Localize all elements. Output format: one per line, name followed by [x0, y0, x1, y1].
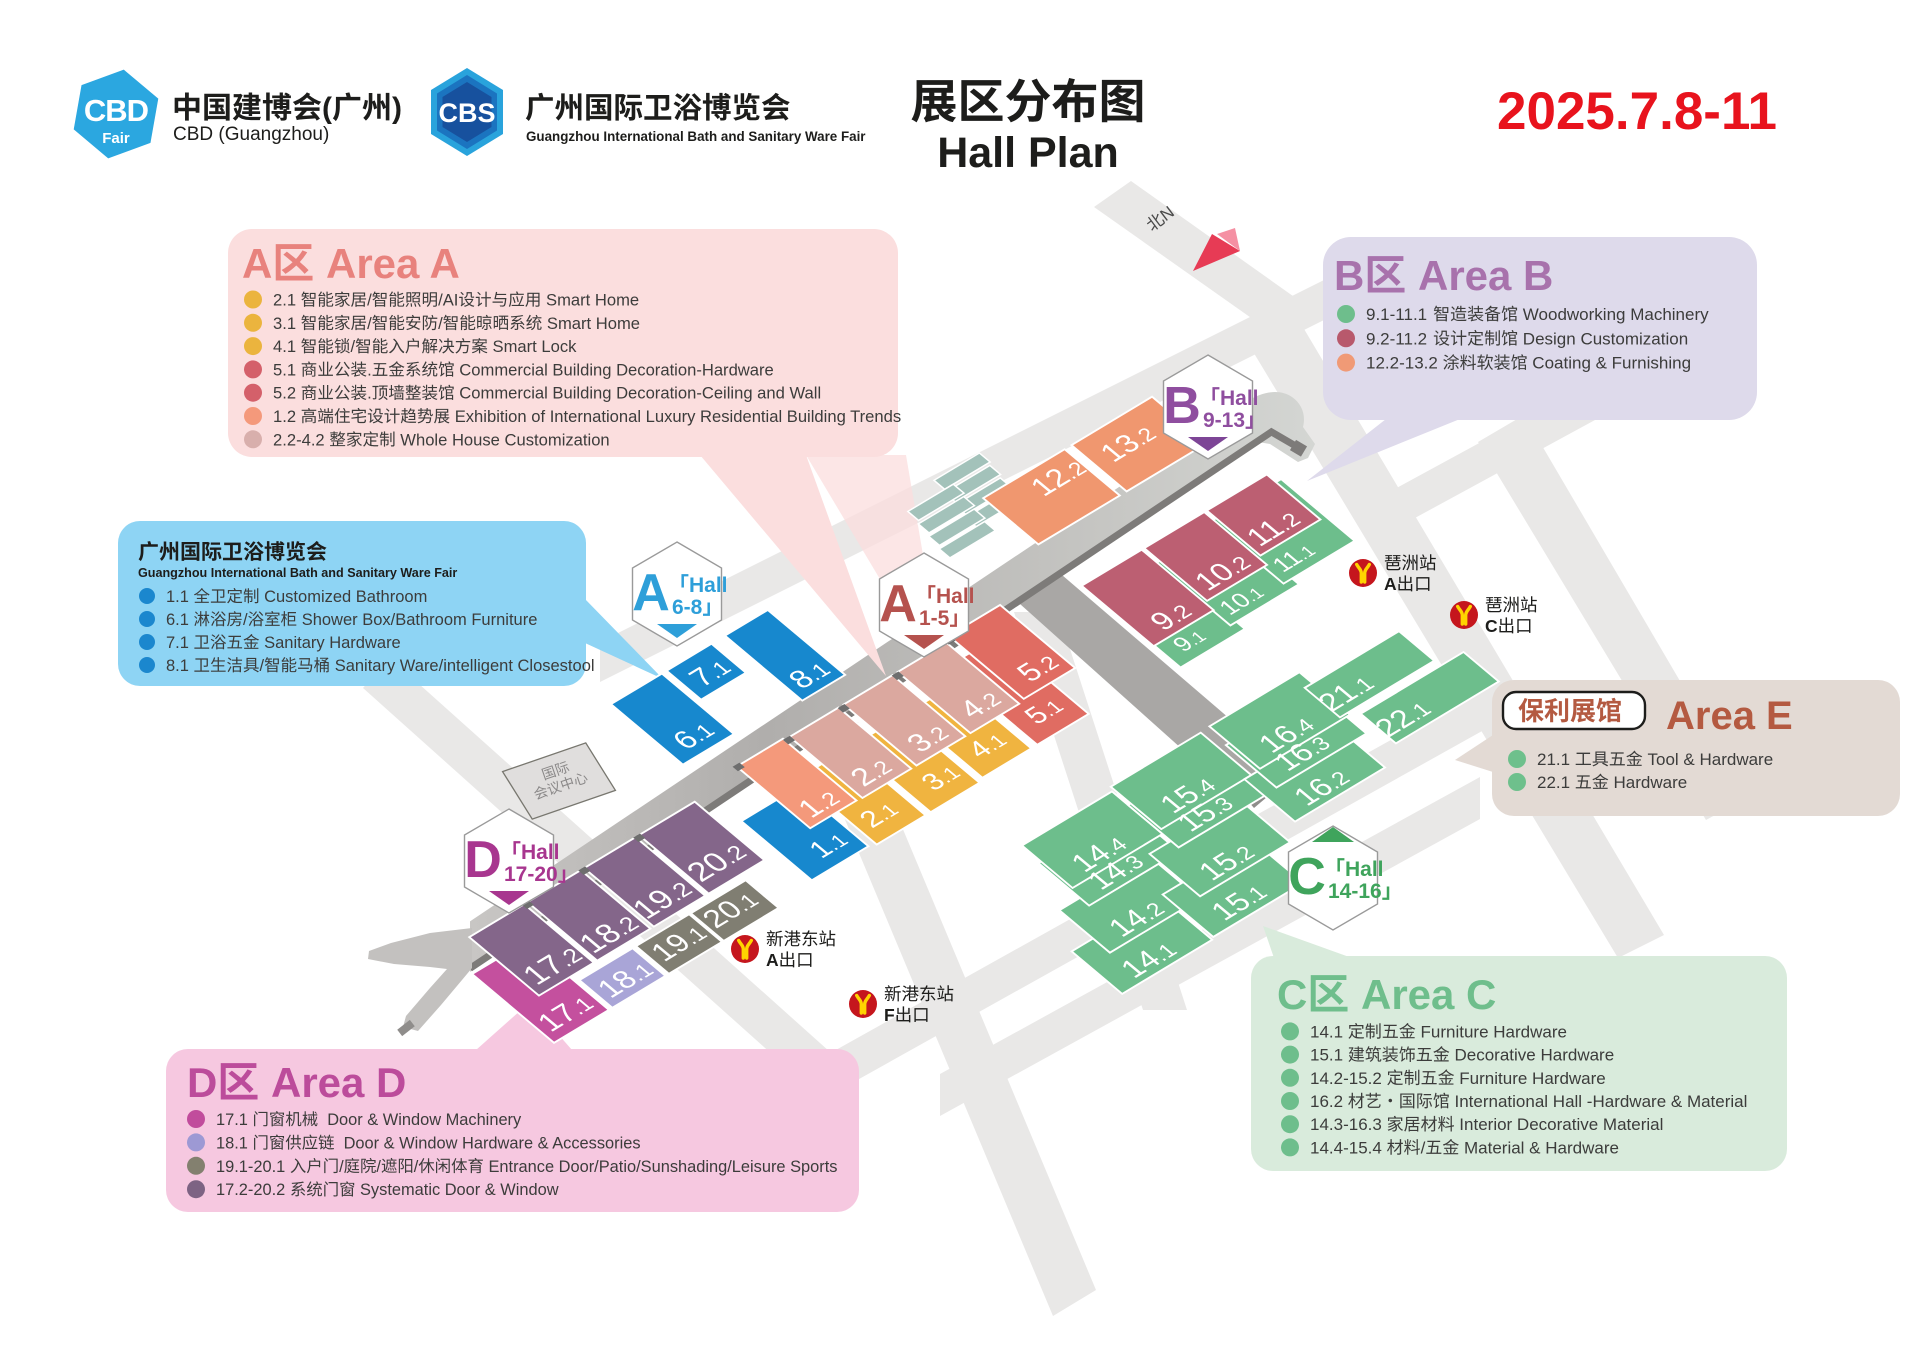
svg-text:B: B — [1163, 377, 1201, 435]
svg-text:15.1: 15.1 — [1310, 1046, 1343, 1065]
svg-text:1.2: 1.2 — [273, 407, 296, 426]
svg-text:6.1: 6.1 — [166, 611, 189, 629]
svg-text:A: A — [1384, 574, 1397, 594]
svg-text:Systematic Door & Window: Systematic Door & Window — [360, 1181, 559, 1199]
svg-text:Material & Hardware: Material & Hardware — [1464, 1138, 1619, 1157]
svg-text:5.2: 5.2 — [273, 384, 296, 403]
svg-text:Furniture Hardware: Furniture Hardware — [1459, 1069, 1605, 1088]
svg-text:Whole House Customization: Whole House Customization — [400, 430, 609, 449]
svg-text:14.2-15.2: 14.2-15.2 — [1310, 1069, 1382, 1088]
svg-text:12.2-13.2: 12.2-13.2 — [1366, 354, 1438, 373]
svg-text:7.1: 7.1 — [166, 634, 189, 652]
svg-text:B: B — [1334, 252, 1364, 299]
svg-text:CBD (Guangzhou): CBD (Guangzhou) — [173, 124, 329, 145]
svg-text:Door & Window Hardware & Acces: Door & Window Hardware & Accessories — [344, 1134, 641, 1152]
svg-text:D: D — [464, 831, 502, 889]
svg-text:16.2: 16.2 — [1310, 1092, 1343, 1111]
svg-text:2.2-4.2: 2.2-4.2 — [273, 430, 325, 449]
svg-text:Area B: Area B — [1418, 252, 1553, 299]
svg-text:Area A: Area A — [326, 240, 460, 287]
svg-text:/AI: /AI — [438, 291, 458, 310]
svg-text:/: / — [367, 314, 372, 333]
svg-text:8.1: 8.1 — [166, 657, 189, 675]
svg-text:9.1-11.1: 9.1-11.1 — [1366, 305, 1427, 324]
svg-text:Smart Lock: Smart Lock — [493, 337, 578, 356]
svg-text:/: / — [1421, 1138, 1426, 1157]
svg-text:2.1: 2.1 — [273, 291, 296, 310]
svg-text:3.1: 3.1 — [273, 314, 296, 333]
svg-text:Hall: Hall — [936, 585, 975, 608]
svg-text:Hall: Hall — [1345, 858, 1384, 881]
svg-text:A: A — [879, 575, 917, 633]
svg-text:Area C: Area C — [1361, 971, 1496, 1018]
svg-text:A: A — [766, 950, 779, 970]
svg-text:/: / — [367, 291, 372, 310]
svg-text:Sanitary Ware/intelligent Clos: Sanitary Ware/intelligent Closestool — [335, 657, 595, 675]
svg-text:1-5: 1-5 — [919, 607, 950, 630]
svg-text:(: ( — [322, 92, 332, 125]
svg-text:International Hall -Hardware &: International Hall -Hardware & Material — [1455, 1092, 1748, 1111]
svg-text:Design Customization: Design Customization — [1523, 329, 1688, 348]
svg-text:Door & Window Machinery: Door & Window Machinery — [327, 1111, 522, 1129]
svg-text:14.3-16.3: 14.3-16.3 — [1310, 1115, 1382, 1134]
svg-text:6-8: 6-8 — [672, 596, 703, 619]
svg-text:Guangzhou International Bath a: Guangzhou International Bath and Sanitar… — [526, 129, 866, 144]
svg-text:Exhibition of International Lu: Exhibition of International Luxury Resid… — [455, 407, 901, 426]
svg-text:/: / — [260, 657, 265, 675]
svg-text:/: / — [243, 611, 248, 629]
svg-text:Fair: Fair — [102, 130, 130, 147]
svg-text:4.1: 4.1 — [273, 337, 296, 356]
svg-text:/: / — [438, 314, 443, 333]
svg-text:Commercial Building Decoration: Commercial Building Decoration-Ceiling a… — [459, 384, 821, 403]
svg-text:/: / — [376, 1158, 381, 1176]
svg-text:Hardware: Hardware — [1614, 773, 1688, 792]
svg-text:CBD: CBD — [84, 93, 149, 128]
svg-text:Area D: Area D — [271, 1059, 406, 1106]
svg-text:A: A — [242, 240, 272, 287]
svg-text:Customized Bathroom: Customized Bathroom — [264, 588, 427, 606]
svg-text:Shower Box/Bathroom Furniture: Shower Box/Bathroom Furniture — [302, 611, 538, 629]
svg-text:2025.7.8-11: 2025.7.8-11 — [1497, 82, 1777, 141]
svg-text:CBS: CBS — [438, 98, 495, 128]
svg-text:/: / — [339, 1158, 344, 1176]
svg-text:Guangzhou International Bath a: Guangzhou International Bath and Sanitar… — [138, 566, 457, 580]
svg-text:.: . — [367, 384, 372, 403]
svg-text:Smart Home: Smart Home — [547, 314, 640, 333]
svg-text:.: . — [367, 360, 372, 379]
svg-text:C: C — [1277, 971, 1307, 1018]
svg-text:Sanitary Hardware: Sanitary Hardware — [264, 634, 401, 652]
svg-text:1.1: 1.1 — [166, 588, 189, 606]
svg-text:Commercial Building Decoration: Commercial Building Decoration-Hardware — [459, 360, 773, 379]
svg-text:/: / — [351, 337, 356, 356]
svg-text:Hall: Hall — [521, 841, 560, 864]
svg-text:Smart Home: Smart Home — [546, 291, 639, 310]
svg-text:Decorative Hardware: Decorative Hardware — [1455, 1046, 1615, 1065]
svg-text:21.1: 21.1 — [1537, 750, 1570, 769]
svg-text:9.2-11.2: 9.2-11.2 — [1366, 329, 1427, 348]
svg-text:): ) — [392, 92, 402, 125]
svg-text:Area E: Area E — [1666, 694, 1793, 738]
svg-text:17-20: 17-20 — [504, 863, 558, 886]
svg-text:Interior Decorative Material: Interior Decorative Material — [1459, 1115, 1663, 1134]
svg-text:Entrance Door/Patio/Sunshading: Entrance Door/Patio/Sunshading/Leisure S… — [489, 1158, 838, 1176]
svg-text:19.1-20.1: 19.1-20.1 — [216, 1158, 285, 1176]
svg-text:/: / — [414, 1158, 419, 1176]
svg-text:F: F — [884, 1005, 895, 1025]
svg-text:18.1: 18.1 — [216, 1134, 248, 1152]
svg-text:14.1: 14.1 — [1310, 1022, 1343, 1041]
svg-text:D: D — [187, 1059, 217, 1106]
svg-text:14.4-15.4: 14.4-15.4 — [1310, 1138, 1382, 1157]
svg-text:C: C — [1288, 848, 1326, 906]
svg-text:9-13: 9-13 — [1203, 409, 1245, 432]
svg-text:17.2-20.2: 17.2-20.2 — [216, 1181, 285, 1199]
svg-text:Coating & Furnishing: Coating & Furnishing — [1532, 354, 1691, 373]
svg-text:Tool & Hardware: Tool & Hardware — [1648, 750, 1774, 769]
svg-text:Furniture Hardware: Furniture Hardware — [1421, 1022, 1567, 1041]
svg-text:C: C — [1485, 616, 1498, 636]
svg-text:Woodworking Machinery: Woodworking Machinery — [1523, 305, 1709, 324]
svg-text:5.1: 5.1 — [273, 360, 296, 379]
svg-text:Hall: Hall — [1220, 387, 1259, 410]
svg-text:Hall Plan: Hall Plan — [937, 129, 1119, 177]
svg-text:14-16: 14-16 — [1328, 880, 1382, 903]
svg-text:Hall: Hall — [689, 574, 728, 597]
svg-text:22.1: 22.1 — [1537, 773, 1570, 792]
svg-text:17.1: 17.1 — [216, 1111, 248, 1129]
svg-text:A: A — [632, 564, 670, 622]
